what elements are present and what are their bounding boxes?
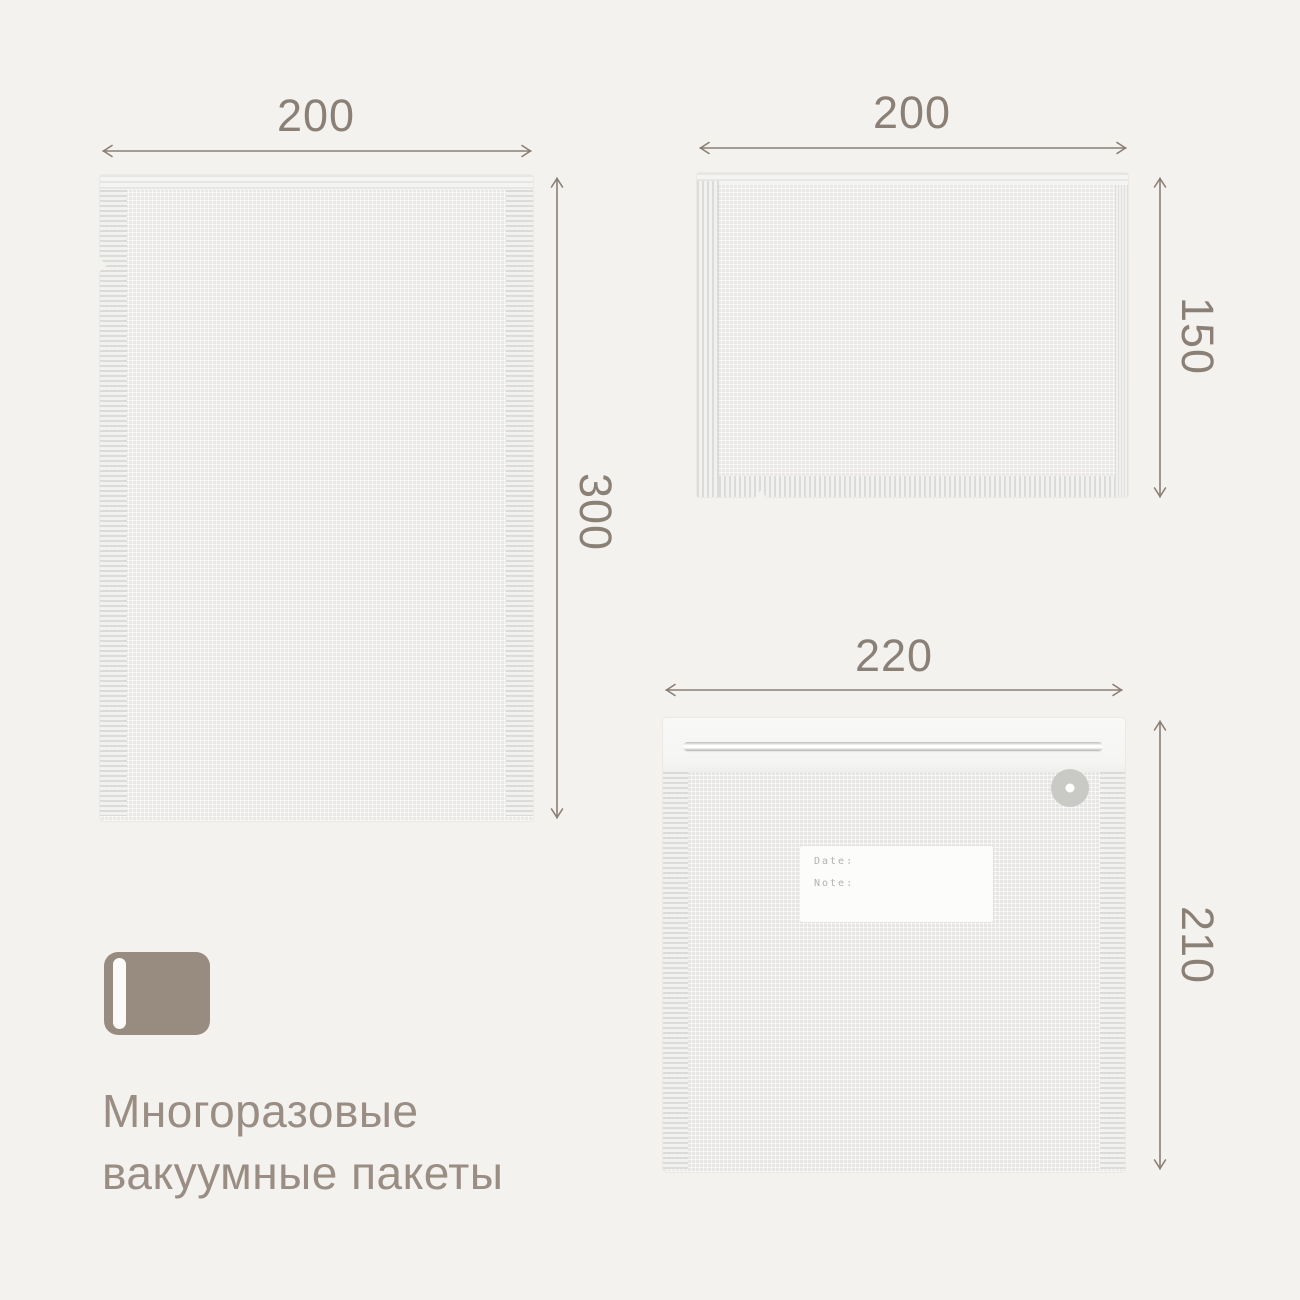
bag1-crimp-band-left: [100, 190, 127, 816]
bag3-zip-slider-bar: [683, 742, 1103, 751]
bag2-width-label: 200: [873, 87, 951, 139]
bag2-width-arrow-icon: [697, 140, 1129, 156]
bag3-label-card: Date: Note:: [800, 846, 993, 922]
product-title: Многоразовые вакуумные пакеты: [102, 1080, 503, 1204]
bag-200x300: [100, 175, 533, 821]
bag3-crimp-band-left: [663, 772, 688, 1170]
vacuum-bag-icon: [104, 952, 210, 1035]
bag3-width-label: 220: [855, 630, 933, 682]
bag1-tear-notch: [99, 258, 107, 272]
bag1-width-arrow-icon: [100, 143, 534, 159]
bag3-height-arrow-icon: [1152, 718, 1168, 1172]
bag2-crimp-band-left: [697, 181, 719, 497]
bag1-height-label: 300: [569, 473, 621, 551]
air-valve-icon: [1051, 769, 1089, 807]
bag2-crimp-band-bottom: [719, 476, 1115, 497]
bag1-seal-strip: [100, 175, 533, 190]
bag2-seal-strip: [697, 173, 1128, 185]
bag3-crimp-band-right: [1100, 772, 1125, 1170]
vacuum-bag-icon-slot: [113, 958, 126, 1029]
bag2-height-label: 150: [1171, 297, 1223, 375]
product-title-line2: вакуумные пакеты: [102, 1142, 503, 1204]
bag1-width-label: 200: [277, 90, 355, 142]
bag2-crimp-band-right: [1115, 185, 1128, 497]
bag2-tear-notch: [755, 490, 767, 498]
bag-200x150: [697, 173, 1128, 497]
infographic-canvas: 200 300 200 150 220: [0, 0, 1300, 1300]
product-title-line1: Многоразовые: [102, 1080, 503, 1142]
note-field-label: Note:: [800, 878, 993, 889]
air-valve-pin: [1066, 784, 1075, 793]
bag1-crimp-band-right: [506, 190, 533, 816]
bag3-width-arrow-icon: [663, 682, 1125, 698]
bag3-zip-strip: [663, 718, 1125, 772]
bag-220x210: Date: Note:: [663, 718, 1125, 1172]
bag1-height-arrow-icon: [549, 175, 565, 821]
bag2-height-arrow-icon: [1152, 175, 1168, 500]
bag3-height-label: 210: [1171, 906, 1223, 984]
date-field-label: Date:: [800, 846, 993, 867]
